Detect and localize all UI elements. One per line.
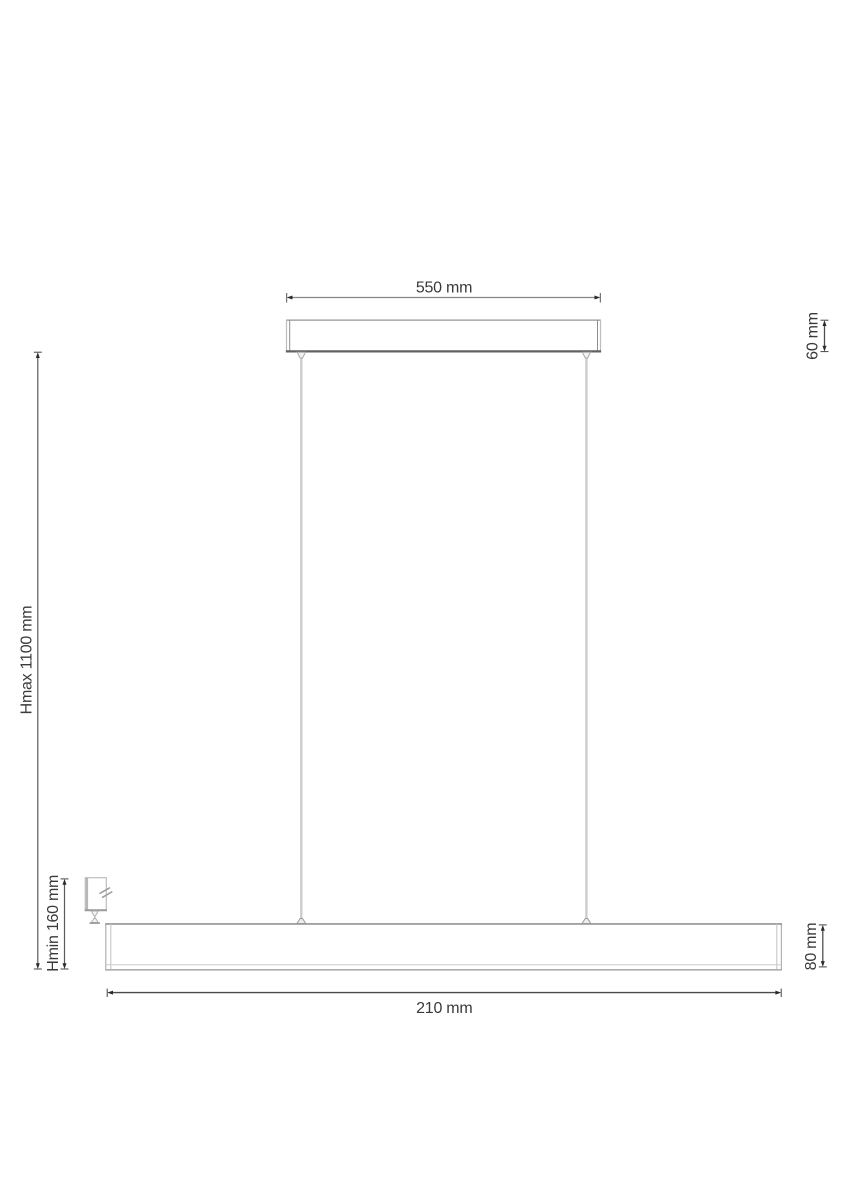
svg-text:60 mm: 60 mm — [805, 312, 822, 360]
svg-text:Hmax 1100 mm: Hmax 1100 mm — [19, 606, 36, 715]
svg-text:550 mm: 550 mm — [416, 280, 472, 297]
svg-text:80 mm: 80 mm — [803, 923, 820, 971]
svg-text:Hmin 160 mm: Hmin 160 mm — [45, 875, 62, 972]
svg-text:210 mm: 210 mm — [416, 1000, 472, 1017]
